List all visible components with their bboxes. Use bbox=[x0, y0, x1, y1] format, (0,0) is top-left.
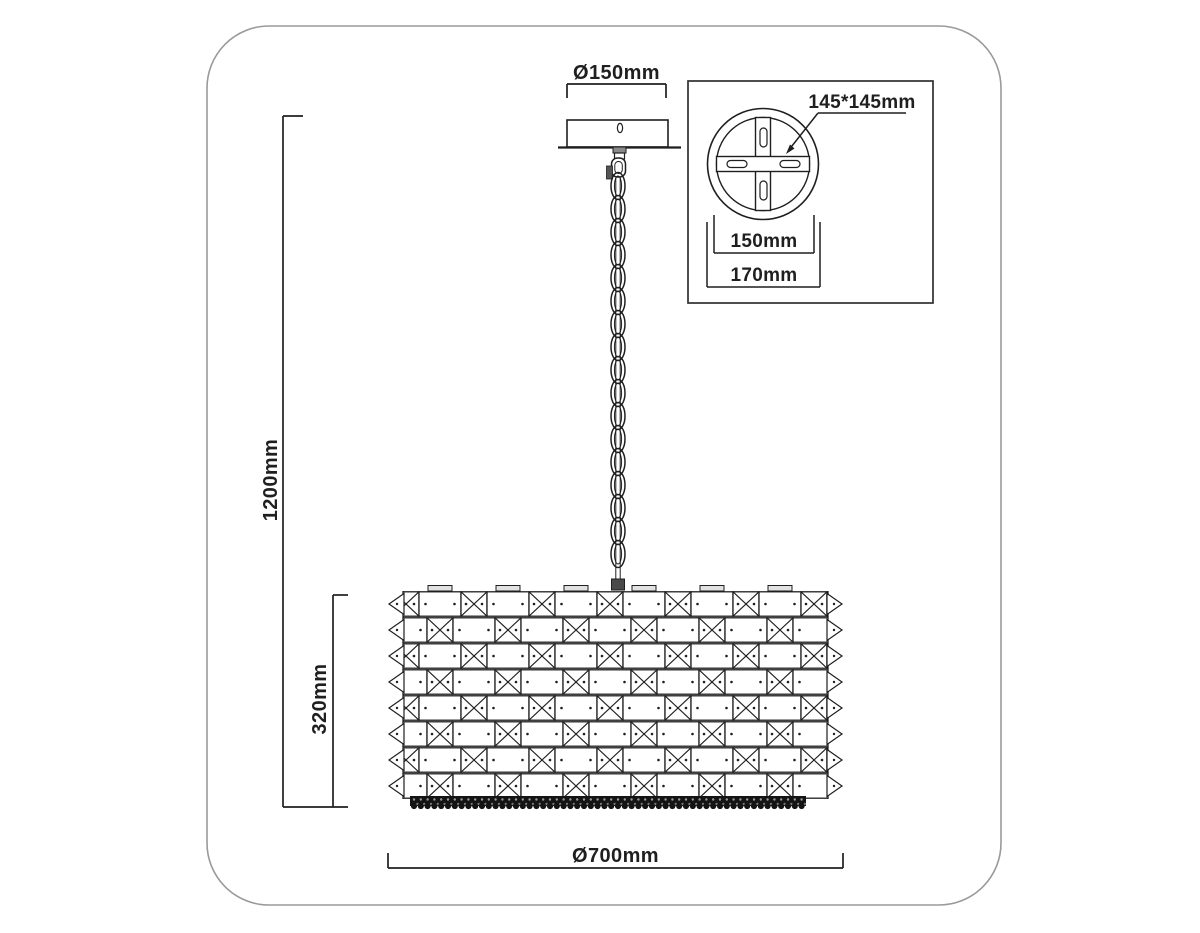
total-height-label: 1200mm bbox=[260, 439, 282, 521]
stem-collar bbox=[613, 147, 626, 153]
dim-shade-diameter: Ø700mm bbox=[388, 845, 843, 868]
mounting-plate-top-view bbox=[708, 109, 819, 220]
bead-trim-band bbox=[410, 796, 806, 809]
quick-link-sleeve bbox=[607, 166, 613, 179]
dim-shade-height: 320mm bbox=[309, 595, 348, 807]
dim-total-height: 1200mm bbox=[260, 116, 348, 807]
plate-outer-diameter-label: 170mm bbox=[731, 265, 798, 286]
ceiling-canopy bbox=[558, 120, 681, 179]
plate-size-label: 145*145mm bbox=[808, 92, 915, 113]
plate-inner-diameter-label: 150mm bbox=[731, 231, 798, 252]
quick-link-outer bbox=[612, 158, 626, 177]
shade-diameter-label: Ø700mm bbox=[572, 845, 659, 867]
shade-height-label: 320mm bbox=[309, 664, 331, 735]
inset-detail-box: 145*145mm 150mm 170mm bbox=[688, 81, 933, 303]
canopy-diameter-label: Ø150mm bbox=[573, 62, 660, 84]
crystal-drum-shade bbox=[325, 586, 869, 800]
dim-canopy-diameter: Ø150mm bbox=[567, 62, 666, 98]
technical-drawing-page: Ø150mm 1200mm 320mm Ø700mm bbox=[0, 0, 1200, 933]
suspension-chain bbox=[611, 173, 625, 591]
drawing-canvas: Ø150mm 1200mm 320mm Ø700mm bbox=[0, 0, 1200, 933]
